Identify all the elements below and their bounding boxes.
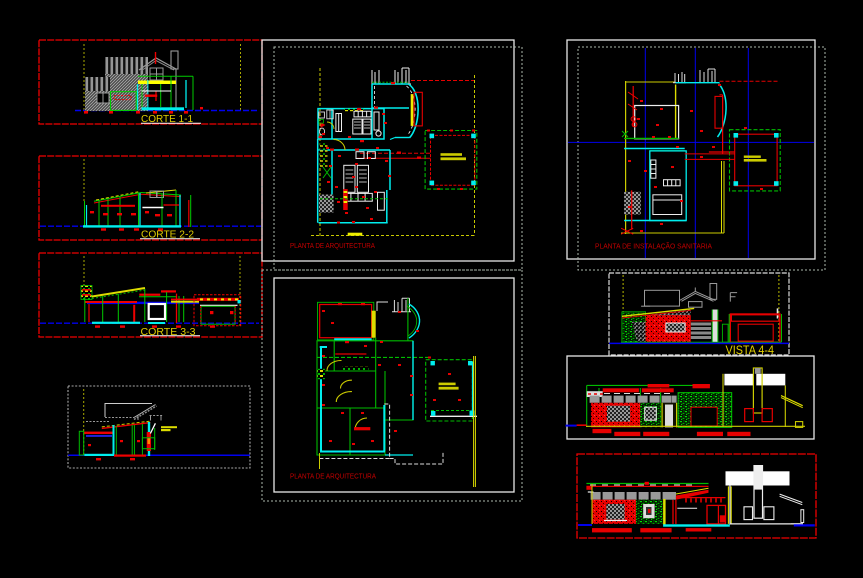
svg-text:PLANTA DE INSTALAÇÃO SANITARI: PLANTA DE INSTALAÇÃO SANITARIA bbox=[595, 242, 713, 251]
svg-text:PLANTA DE ARQUITECTURA: PLANTA DE ARQUITECTURA bbox=[290, 241, 376, 250]
svg-text:PLANTA DE ARQUITECTURA: PLANTA DE ARQUITECTURA bbox=[290, 472, 377, 481]
svg-text:VISTA 4-4: VISTA 4-4 bbox=[726, 345, 775, 357]
